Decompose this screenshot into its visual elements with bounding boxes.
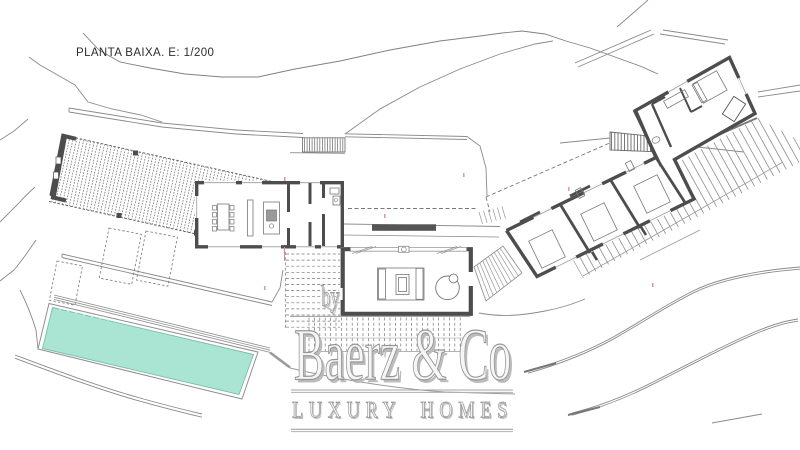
svg-text:PLANTA BAIXA. E: 1/200: PLANTA BAIXA. E: 1/200 (76, 47, 214, 59)
svg-text:Baerz & Co: Baerz & Co (294, 315, 511, 397)
svg-text:by: by (321, 281, 340, 313)
svg-text:LUXURY HOMES: LUXURY HOMES (292, 396, 513, 423)
